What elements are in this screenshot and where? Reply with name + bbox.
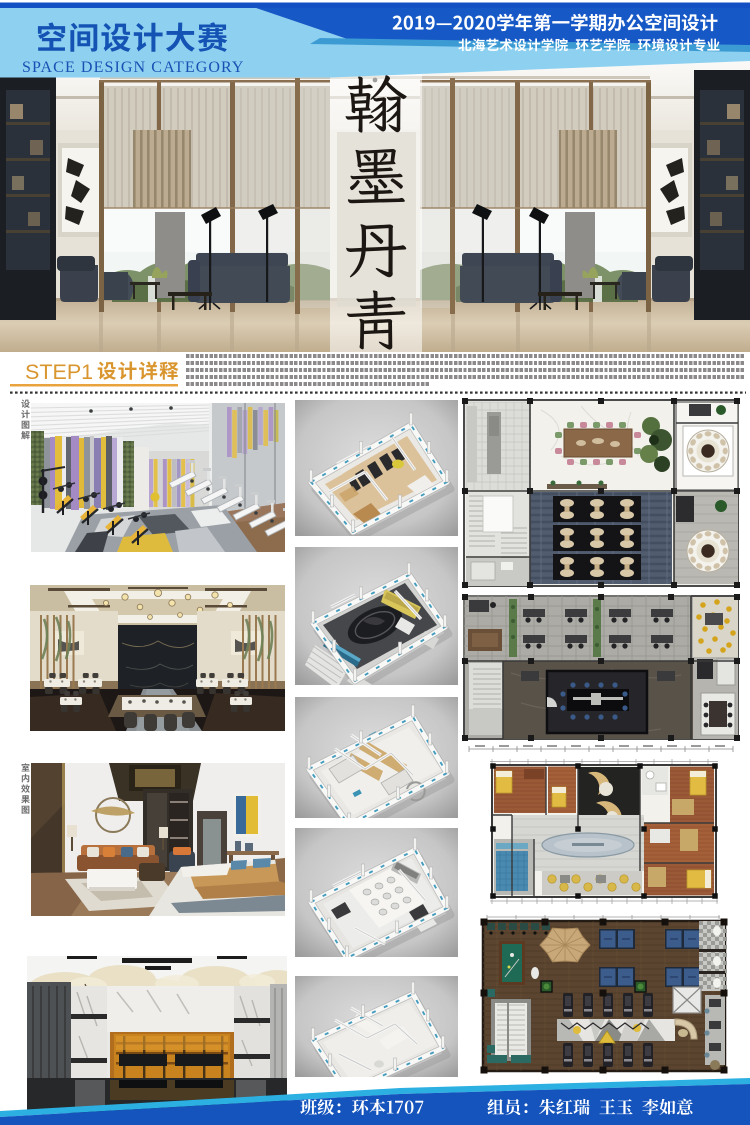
svg-text:SPACE DESIGN CATEGORY: SPACE DESIGN CATEGORY — [22, 59, 245, 76]
svg-text:STEP1: STEP1 — [25, 360, 93, 384]
